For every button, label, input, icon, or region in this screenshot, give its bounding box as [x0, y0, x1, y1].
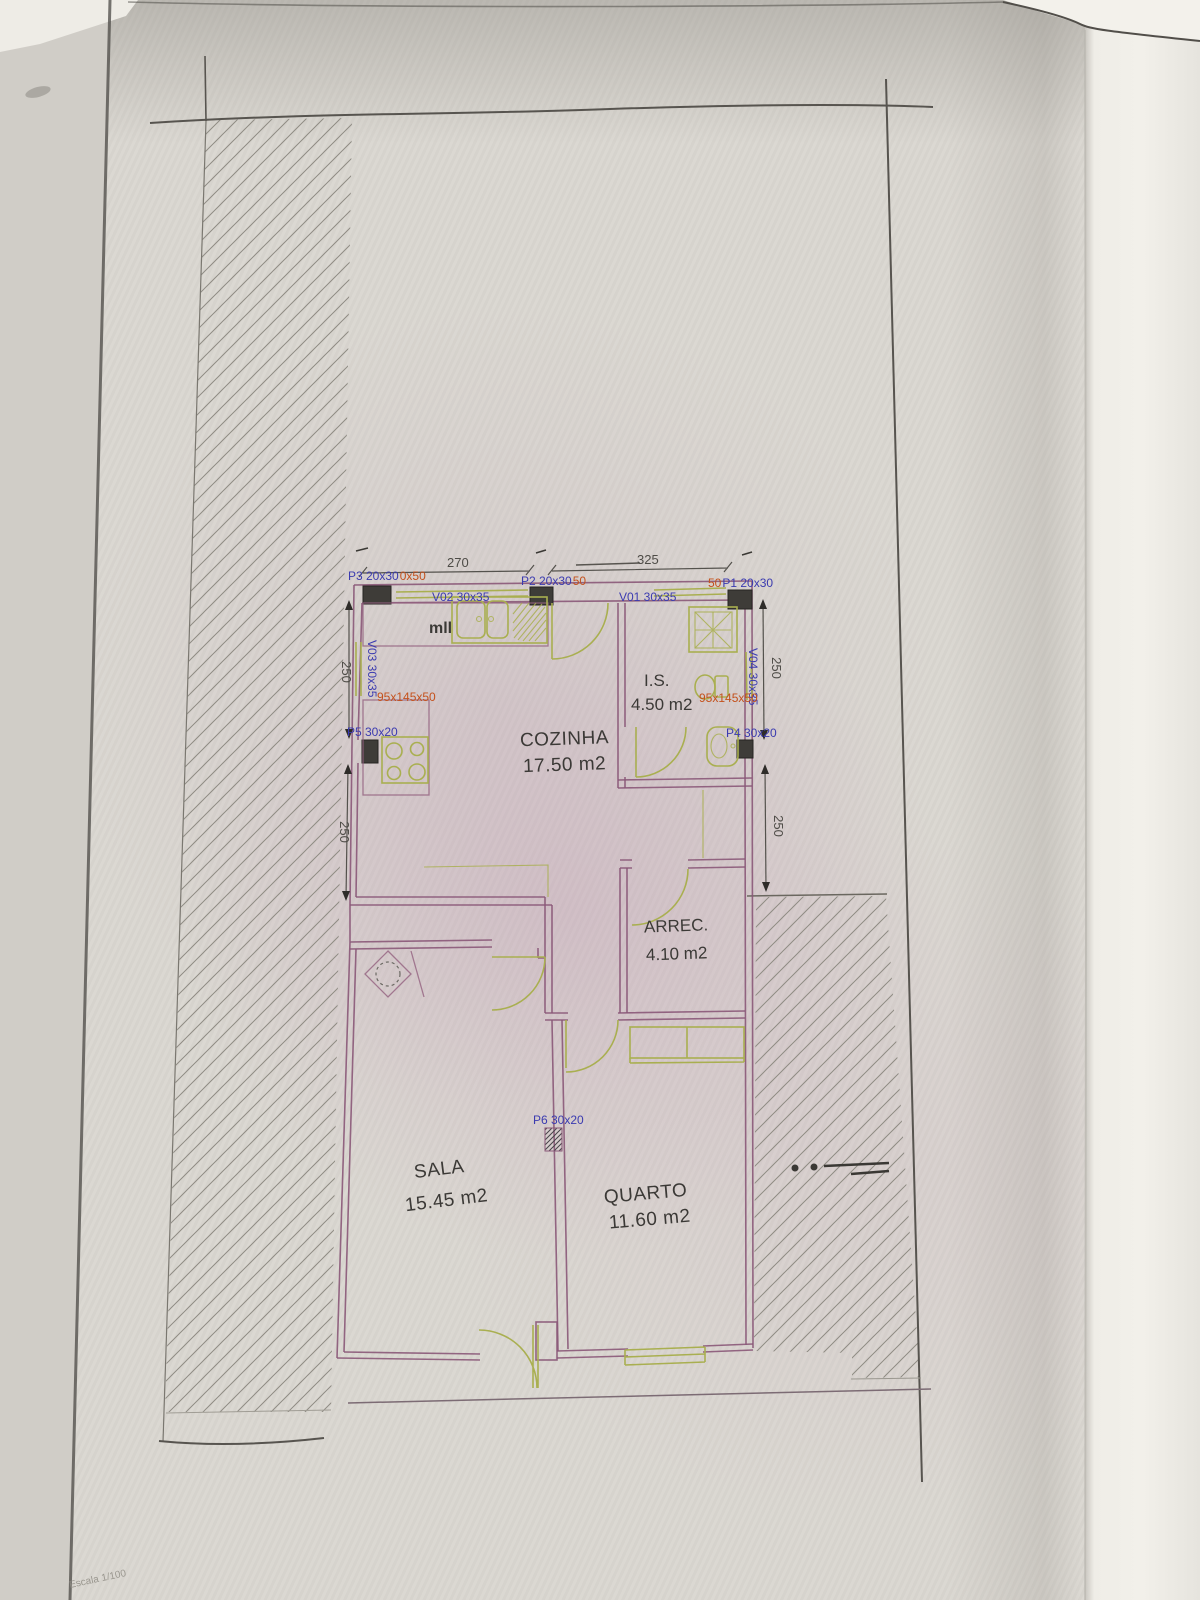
floor-plan-photo: 270 325 250 250 250 250 P3 20x300x50 P2 …	[0, 0, 1200, 1600]
right-hatch-bottom-line	[851, 1378, 921, 1379]
label-counter-right: 95x145x50	[699, 691, 758, 705]
arrow-ru-top	[759, 599, 767, 609]
sala-south-wall	[337, 1352, 480, 1360]
label-p3: P3 20x300x50	[348, 569, 426, 583]
arrow-ll-bot	[342, 891, 350, 901]
sink-bowl-1	[457, 601, 485, 638]
fireplace	[365, 951, 424, 997]
fireplace-chamfer	[411, 951, 424, 997]
quarto-north-wall	[545, 1011, 745, 1020]
dim-270: 270	[447, 555, 469, 570]
washbasin-tap	[731, 744, 735, 748]
room-quarto: QUARTO	[603, 1180, 688, 1208]
dim-250-right-lower: 250	[771, 815, 786, 837]
windows	[356, 588, 752, 1365]
is-door	[636, 727, 686, 777]
burner-4	[409, 764, 425, 780]
fireplace-diamond	[365, 951, 411, 997]
pillar-p4	[737, 740, 753, 758]
room-is: I.S.	[644, 671, 670, 690]
sala-door	[492, 957, 545, 1010]
entrance-door	[479, 1325, 538, 1388]
doors	[479, 603, 688, 1388]
arrow-ll-top	[344, 764, 352, 774]
quarto-door	[566, 1020, 618, 1072]
sala-west-wall	[337, 942, 356, 1358]
is-west-wall	[618, 603, 625, 788]
pillar-p2	[530, 587, 553, 605]
arrow-rl-bot	[762, 882, 770, 892]
left-backdrop	[0, 0, 110, 1600]
washbasin-bowl	[711, 734, 727, 758]
room-cozinha-area: 17.50 m2	[523, 753, 607, 777]
corridor-west-wall	[545, 897, 552, 1013]
right-hatch-top-line	[747, 894, 887, 896]
east-wall-inner	[745, 600, 746, 1345]
boundary-top-short-segment	[576, 563, 640, 565]
shower-drain-rays	[695, 612, 731, 648]
fireplace-flue	[376, 962, 400, 986]
pillar-p6	[545, 1128, 562, 1151]
arrec-north-wall	[620, 859, 745, 868]
label-p2: P2 20x3050	[521, 574, 586, 588]
room-arrec: ARREC.	[644, 915, 709, 936]
survey-dot-1	[792, 1165, 799, 1172]
boundary-bottom-left	[159, 1438, 324, 1444]
room-is-area: 4.50 m2	[631, 695, 692, 714]
label-p1: 50P1 20x30	[708, 576, 773, 590]
kitchen-door	[552, 603, 608, 659]
page-curl-right	[1003, 0, 1200, 1600]
dim-250-right-upper: 250	[769, 657, 784, 679]
pillar-p1	[728, 590, 752, 609]
window-v03	[356, 642, 361, 696]
room-labels: mll COZINHA 17.50 m2 I.S. 4.50 m2 ARREC.…	[68, 620, 708, 1591]
room-arrec-area: 4.10 m2	[646, 943, 708, 964]
survey-dot-2	[811, 1164, 818, 1171]
room-sala: SALA	[413, 1156, 466, 1183]
room-quarto-area: 11.60 m2	[608, 1206, 691, 1234]
sala-north-wall	[350, 905, 545, 958]
label-v02: V02 30x35	[432, 590, 490, 604]
dim-250-left-lower: 250	[337, 821, 352, 843]
label-v01: V01 30x35	[619, 590, 677, 604]
label-p5: P5 30x20	[347, 725, 398, 739]
boundary-left-upper	[205, 56, 206, 121]
room-sala-area: 15.45 m2	[404, 1185, 489, 1216]
quarto-window	[625, 1347, 705, 1365]
label-p4: P4 30x20	[726, 726, 777, 740]
sink-drainboard	[513, 603, 546, 641]
faucet-dot-2	[489, 617, 494, 622]
west-wall-outer	[350, 585, 354, 905]
arrec-west-wall	[620, 868, 627, 1013]
room-cozinha: COZINHA	[520, 727, 610, 751]
label-p6: P6 30x20	[533, 1113, 584, 1127]
left-hatch-strip	[165, 118, 352, 1412]
floor-finish-lines	[424, 790, 703, 897]
arrow-lu-top	[345, 600, 353, 610]
dim-line-right-lower	[765, 766, 766, 890]
arrow-rl-top	[761, 764, 769, 774]
dim-325: 325	[637, 552, 659, 567]
sala-quarto-wall	[552, 1020, 568, 1351]
pillar-p3	[363, 586, 391, 604]
burner-1	[386, 743, 402, 759]
kitchen-counter-top	[363, 603, 548, 646]
burner-3	[388, 767, 401, 780]
boundary-bottom-plan	[348, 1389, 931, 1403]
entrance-jamb	[536, 1322, 557, 1360]
dim-250-left-upper: 250	[339, 661, 354, 683]
axis-ticks	[356, 548, 752, 555]
right-hatch-area	[754, 896, 920, 1378]
scale-note: Escala 1/100	[68, 1568, 127, 1591]
pillar-p5	[362, 740, 378, 763]
kitchen-south-wall	[350, 897, 552, 905]
page-top-edge-line	[128, 2, 1003, 7]
under-page	[1085, 0, 1200, 1600]
burner-2	[411, 743, 424, 756]
page-right-edge	[1085, 30, 1086, 1600]
dim-line-right-upper	[763, 601, 764, 738]
bedroom-fixtures	[630, 1027, 744, 1063]
plan-drawing: 270 325 250 250 250 250 P3 20x300x50 P2 …	[0, 0, 1200, 1600]
bathroom-fixtures	[689, 607, 738, 766]
is-south-wall	[618, 778, 752, 788]
faucet-dot-1	[477, 617, 482, 622]
label-mll: mll	[429, 620, 452, 637]
sink-bowl-2	[487, 601, 508, 638]
label-counter-left: 95x145x50	[377, 690, 436, 704]
